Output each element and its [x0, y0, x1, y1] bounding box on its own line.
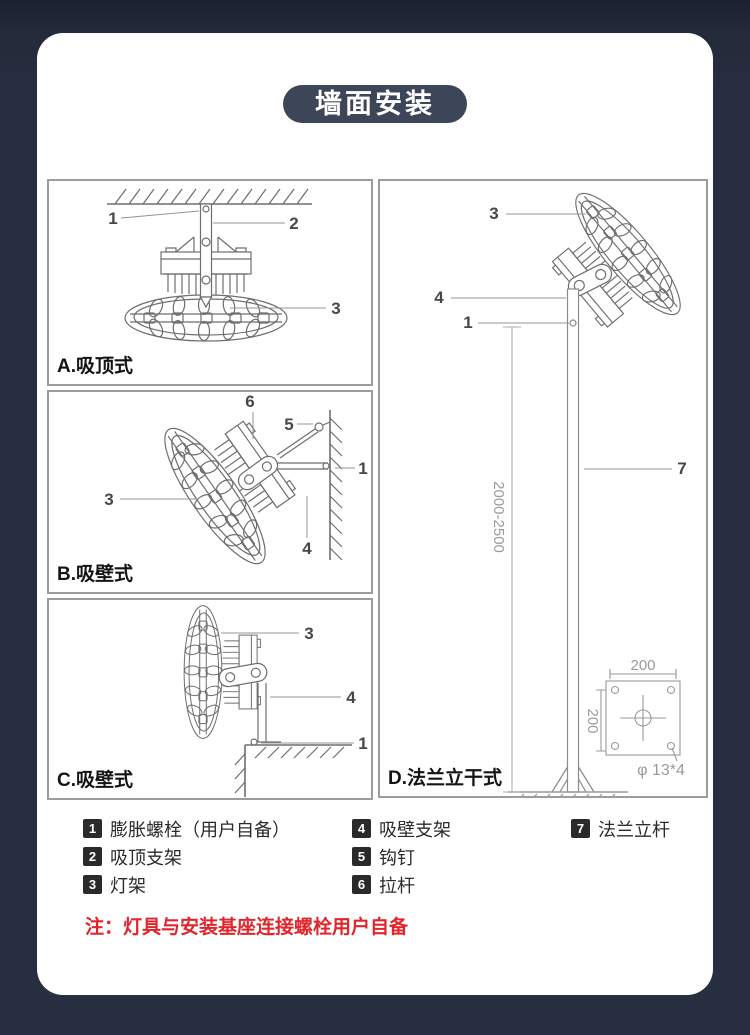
- flange-width-dimension: 200: [630, 657, 655, 674]
- panel-a-title: A.吸顶式: [57, 351, 133, 378]
- legend-number-badge: 1: [83, 819, 102, 838]
- mount-pole: [201, 204, 212, 307]
- flange-detail: [596, 669, 680, 761]
- legend-item-label: 钩钉: [379, 844, 415, 870]
- flange-height-dimension: 200: [584, 708, 601, 733]
- legend-number-badge: 2: [83, 847, 102, 866]
- installation-note: 注：灯具与安装基座连接螺栓用户自备: [85, 912, 408, 939]
- lamp-drawing: [125, 204, 287, 341]
- section-title-badge: 墙面安装: [283, 85, 467, 123]
- legend-number-badge: 3: [83, 875, 102, 894]
- legend-item-label: 灯架: [110, 872, 146, 898]
- pole-height-dimension: 2000-2500: [490, 481, 507, 553]
- legend-column-1: 1 膨胀螺栓（用户自备） 2 吸顶支架 3 灯架: [83, 819, 290, 903]
- panel-d-flange-pole-mount: 2000-2500 200 200 φ 13*4 3 4 1 7 D.法兰立干式: [378, 179, 708, 798]
- panel-b-wall-mount: 6 5 1 3 4 B.吸壁式: [47, 390, 373, 594]
- panel-c-wall-mount: 3 4 1 C.吸壁式: [47, 598, 373, 800]
- legend-item-3: 3 灯架: [83, 875, 290, 894]
- legend-number-badge: 5: [352, 847, 371, 866]
- callout-label: 3: [331, 299, 340, 318]
- legend-item-7: 7 法兰立杆: [571, 819, 670, 838]
- surface-hatch: [235, 739, 352, 797]
- callout-label: 1: [358, 459, 367, 478]
- wall-hatch: [330, 410, 342, 560]
- legend-item-6: 6 拉杆: [352, 875, 451, 894]
- ground-hatch: [508, 792, 628, 796]
- height-dimension: [503, 327, 521, 792]
- callout-label: 3: [104, 490, 113, 509]
- callout-label: 1: [108, 209, 117, 228]
- legend-item-1: 1 膨胀螺栓（用户自备）: [83, 819, 290, 838]
- callout-label: 7: [677, 459, 686, 478]
- callout-label: 1: [358, 734, 367, 753]
- lamp-drawing: [184, 606, 281, 742]
- callout-label: 3: [489, 204, 498, 223]
- callout-label: 1: [463, 313, 472, 332]
- panel-d-title: D.法兰立干式: [388, 763, 502, 790]
- legend-item-5: 5 钩钉: [352, 847, 451, 866]
- panel-c-title: C.吸壁式: [57, 765, 133, 792]
- legend-item-label: 膨胀螺栓（用户自备）: [110, 816, 290, 842]
- legend-item-label: 拉杆: [379, 872, 415, 898]
- callout-label: 4: [346, 688, 356, 707]
- legend-number-badge: 4: [352, 819, 371, 838]
- legend-item-label: 吸顶支架: [110, 844, 182, 870]
- panel-a-ceiling-mount: 1 2 3 A.吸顶式: [47, 179, 373, 386]
- legend-number-badge: 6: [352, 875, 371, 894]
- callout-label: 4: [302, 539, 312, 558]
- content-card: 墙面安装 1 2 3: [37, 33, 713, 995]
- callout-label: 5: [284, 415, 293, 434]
- legend-column-2: 4 吸壁支架 5 钩钉 6 拉杆: [352, 819, 451, 903]
- ceiling-hatch: [107, 189, 312, 204]
- callout-label: 4: [434, 288, 444, 307]
- lamp-drawing: [528, 181, 695, 356]
- callout-label: 3: [304, 624, 313, 643]
- legend-item-label: 吸壁支架: [379, 816, 451, 842]
- bolt-holes-dimension: φ 13*4: [637, 762, 685, 779]
- legend-item-4: 4 吸壁支架: [352, 819, 451, 838]
- panel-b-title: B.吸壁式: [57, 559, 133, 586]
- callout-label: 6: [245, 392, 254, 411]
- legend-item-label: 法兰立杆: [598, 816, 670, 842]
- legend-column-3: 7 法兰立杆: [571, 819, 670, 847]
- callout-label: 2: [289, 214, 298, 233]
- diagram-d-flange-pole: 2000-2500 200 200 φ 13*4 3 4 1 7: [380, 181, 706, 796]
- legend-item-2: 2 吸顶支架: [83, 847, 290, 866]
- legend-number-badge: 7: [571, 819, 590, 838]
